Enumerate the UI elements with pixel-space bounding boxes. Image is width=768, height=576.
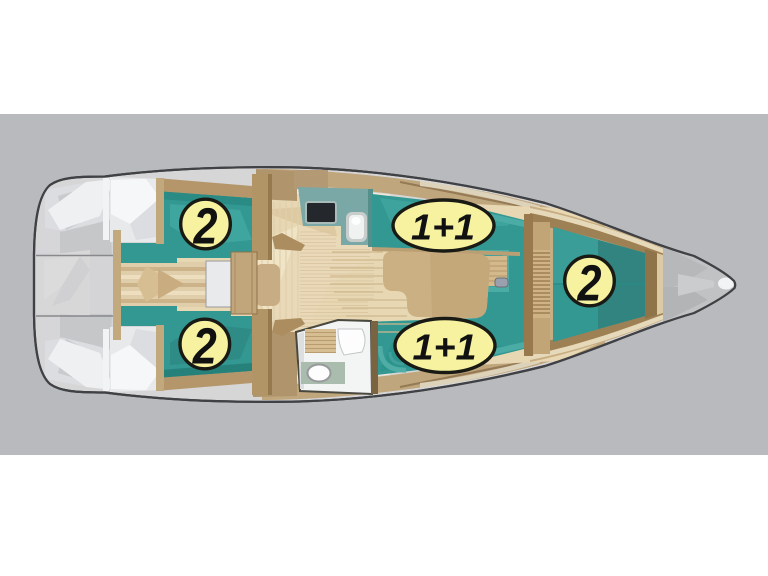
svg-text:2: 2 xyxy=(192,318,217,375)
svg-text:1+1: 1+1 xyxy=(411,207,475,248)
svg-text:1+1: 1+1 xyxy=(413,327,477,368)
svg-text:2: 2 xyxy=(193,198,218,255)
svg-text:2: 2 xyxy=(577,255,602,312)
